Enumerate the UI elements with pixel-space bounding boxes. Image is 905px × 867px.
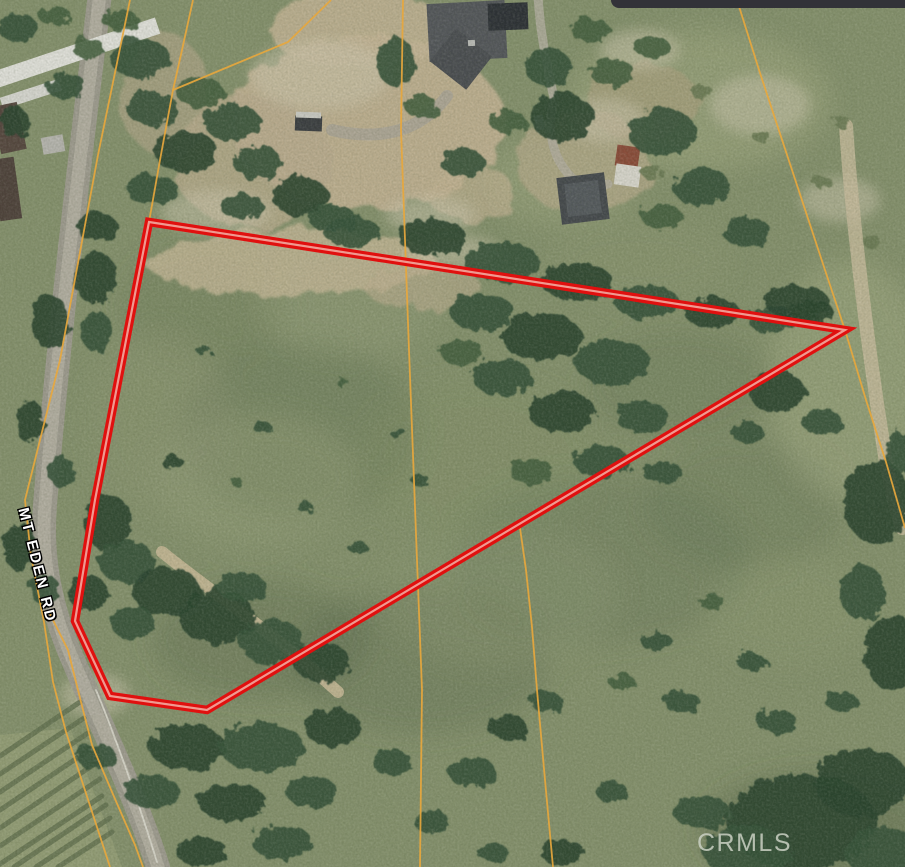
grain-light [0, 0, 905, 867]
listing-aerial-photo: MT EDEN RD CRMLS [0, 0, 905, 867]
aerial-map-image [0, 0, 905, 867]
